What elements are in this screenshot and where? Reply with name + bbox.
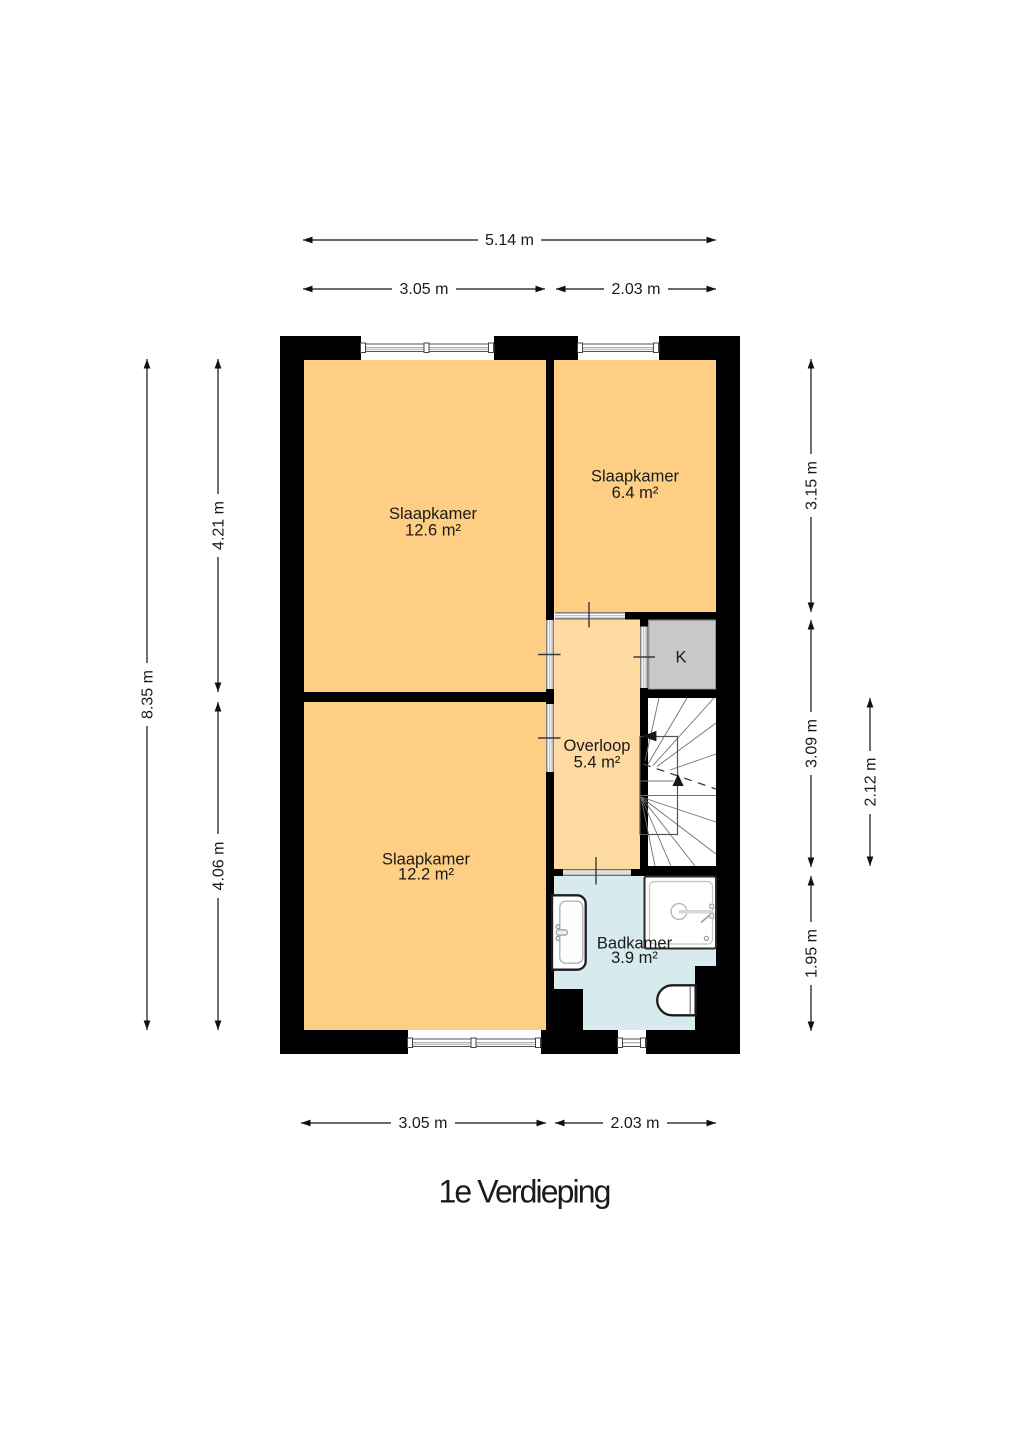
svg-text:K: K [675,648,686,666]
svg-text:1e Verdieping: 1e Verdieping [438,1174,609,1210]
svg-text:Overloop: Overloop [564,737,631,755]
svg-text:12.2 m²: 12.2 m² [398,866,454,884]
svg-text:4.06 m: 4.06 m [211,842,228,891]
svg-text:5.14 m: 5.14 m [485,232,534,249]
svg-text:2.03 m: 2.03 m [611,1115,660,1132]
svg-text:12.6 m²: 12.6 m² [405,522,461,540]
svg-text:8.35 m: 8.35 m [140,670,157,719]
svg-text:Slaapkamer: Slaapkamer [591,467,680,485]
svg-text:3.9 m²: 3.9 m² [611,949,658,967]
svg-text:3.09 m: 3.09 m [804,719,821,768]
svg-text:4.21 m: 4.21 m [211,501,228,550]
svg-text:5.4 m²: 5.4 m² [574,754,621,772]
svg-text:Slaapkamer: Slaapkamer [389,505,478,523]
svg-text:1.95 m: 1.95 m [804,929,821,978]
svg-text:3.15 m: 3.15 m [804,461,821,510]
svg-text:3.05 m: 3.05 m [400,281,449,298]
svg-text:6.4 m²: 6.4 m² [612,484,659,502]
svg-text:2.12 m: 2.12 m [863,758,880,807]
svg-text:2.03 m: 2.03 m [612,281,661,298]
svg-text:3.05 m: 3.05 m [399,1115,448,1132]
